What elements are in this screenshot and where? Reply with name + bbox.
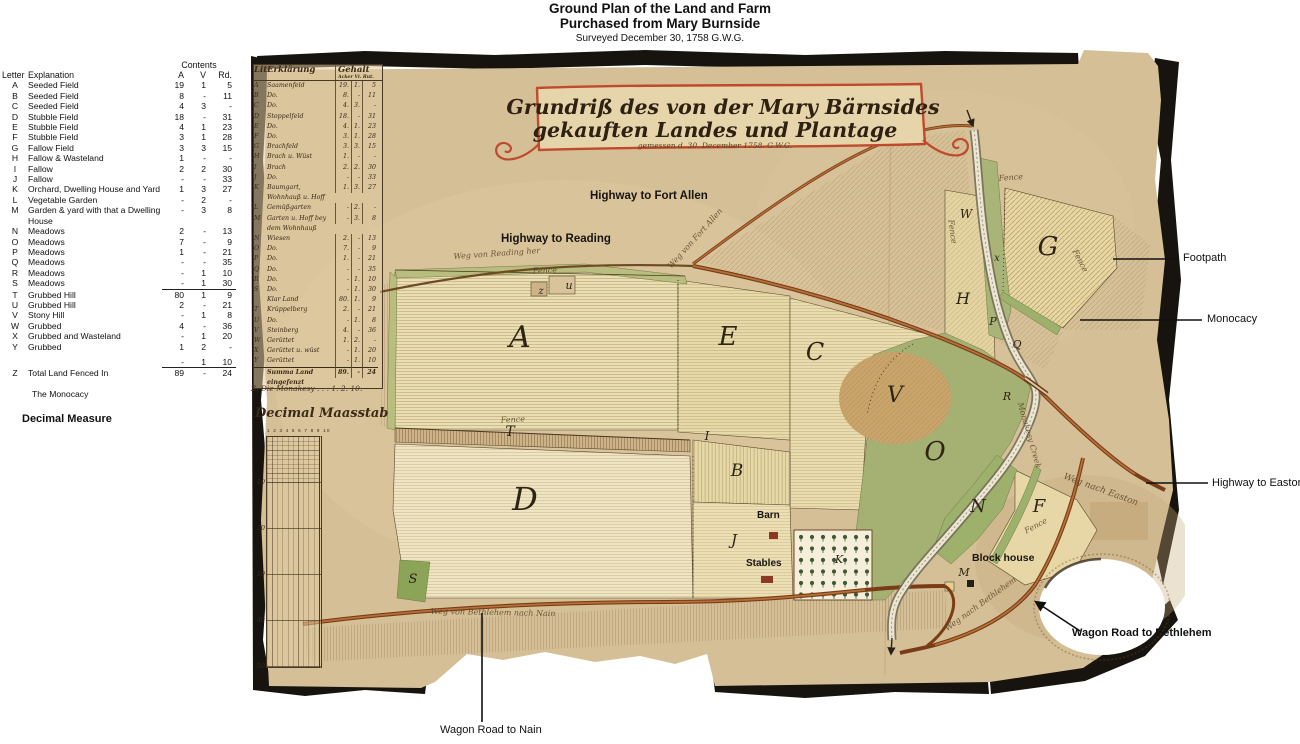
german-cell-A: Saamenfeld bbox=[267, 81, 335, 91]
orchard-tree bbox=[810, 558, 814, 562]
german-cell-G: 3. bbox=[351, 142, 362, 152]
legend-cell-P: 1 bbox=[162, 247, 188, 257]
map-letter-S: S bbox=[409, 572, 418, 587]
legend-cell-S: - bbox=[162, 278, 188, 289]
orchard-tree bbox=[810, 569, 814, 573]
legend-cell-Z: 89 bbox=[162, 368, 188, 378]
german-cell-row26: 89. bbox=[335, 367, 351, 378]
orchard-tree bbox=[865, 592, 869, 596]
legend-cell-L: L bbox=[2, 195, 28, 205]
map-letter-N: N bbox=[969, 496, 987, 517]
legend-cell-P: P bbox=[2, 247, 28, 257]
legend-cell-S: Meadows bbox=[28, 278, 162, 288]
legend-cell-X: X bbox=[2, 331, 28, 341]
legend-cell-N: N bbox=[2, 226, 28, 236]
legend-cell-E: Stubble Field bbox=[28, 122, 162, 132]
legend-cell-Q: - bbox=[162, 257, 188, 267]
map-letter-V: V bbox=[887, 383, 905, 408]
german-cell-M: M bbox=[254, 214, 267, 224]
legend-cell-K: K bbox=[2, 184, 28, 194]
legend-cell-I: 30 bbox=[210, 164, 236, 174]
legend-cell-M: - bbox=[162, 205, 188, 215]
legend-cell-L: - bbox=[162, 195, 188, 205]
german-cell-N: N bbox=[254, 234, 267, 244]
german-cell-Y: Y bbox=[254, 356, 267, 366]
legend-cell-S: 1 bbox=[188, 278, 210, 289]
legend-cell-H: 1 bbox=[162, 153, 188, 163]
legend-cell-Z: - bbox=[188, 368, 210, 378]
german-cell-N: 2. bbox=[335, 234, 351, 244]
german-cell-O: 9 bbox=[362, 244, 378, 254]
orchard-tree bbox=[843, 569, 847, 573]
legend-cell-S: S bbox=[2, 278, 28, 288]
legend-cell-X: Grubbed and Wasteland bbox=[28, 331, 162, 341]
german-cell-row19: 1. bbox=[351, 295, 362, 305]
legend-cell-R: 1 bbox=[188, 268, 210, 278]
german-cell-K: 1. bbox=[335, 183, 351, 193]
german-cell-C: C bbox=[254, 101, 267, 111]
orchard-tree bbox=[843, 535, 847, 539]
scale-bar bbox=[266, 436, 322, 668]
german-cell-S: - bbox=[335, 285, 351, 295]
german-cell-B: Do. bbox=[267, 91, 335, 101]
legend-cell-N: 2 bbox=[162, 226, 188, 236]
page: { "page": { "title1": "Ground Plan of th… bbox=[0, 0, 1300, 744]
german-cell-S: S bbox=[254, 285, 267, 295]
german-cell-S: Do. bbox=[267, 285, 335, 295]
german-cell-S: 30 bbox=[362, 285, 378, 295]
scale-top-ticks: 1 2 3 4 5 6 7 8 9 10 bbox=[267, 428, 331, 433]
legend-cell-P: 21 bbox=[210, 247, 236, 257]
legend-cell-X: 1 bbox=[188, 331, 210, 341]
map-letter-F: F bbox=[1032, 496, 1047, 517]
german-cell-J: J bbox=[254, 173, 267, 183]
cartouche-title-line1: Grundriß des von der Mary Bärnsides bbox=[506, 95, 940, 119]
german-cell-B: - bbox=[351, 91, 362, 101]
german-cell-H: Brach u. Wüst bbox=[267, 152, 335, 162]
orchard-tree bbox=[832, 569, 836, 573]
german-cell-Q: Q bbox=[254, 265, 267, 275]
german-cell-I: 2. bbox=[335, 163, 351, 173]
legend-cell-V: 8 bbox=[210, 310, 236, 320]
german-cell-O: O bbox=[254, 244, 267, 254]
legend-cell-W: 36 bbox=[210, 321, 236, 331]
german-cell-D: 18. bbox=[335, 112, 351, 122]
col-explanation: Explanation bbox=[28, 70, 162, 80]
legend-cell-W: - bbox=[188, 321, 210, 331]
legend-cell-D: - bbox=[188, 112, 210, 122]
orchard-tree bbox=[854, 581, 858, 585]
orchard-tree bbox=[799, 546, 803, 550]
german-cell-row19 bbox=[254, 295, 267, 305]
col-a: A bbox=[162, 70, 188, 80]
orchard-tree bbox=[865, 535, 869, 539]
german-cell-X: 20 bbox=[362, 346, 378, 356]
decimal-measure-heading: Decimal Measure bbox=[22, 413, 238, 425]
map-scan: Grundriß des von der Mary Bärnsides geka… bbox=[245, 40, 1185, 700]
german-cell-P: - bbox=[351, 254, 362, 264]
german-cell-K: Baumgart, Wohnhauß u. Hoff bbox=[267, 183, 335, 203]
german-cell-U: Do. bbox=[267, 316, 335, 326]
legend-cell-U: 2 bbox=[162, 300, 188, 310]
map-letter-P: P bbox=[988, 315, 997, 328]
german-cell-U: - bbox=[335, 316, 351, 326]
legend-cell-K: 1 bbox=[162, 184, 188, 194]
legend-cell-N: - bbox=[188, 226, 210, 236]
orchard-tree bbox=[843, 558, 847, 562]
legend-cell-Q: 35 bbox=[210, 257, 236, 267]
map-letter-M: M bbox=[957, 566, 970, 579]
map-letter-D: D bbox=[511, 480, 538, 518]
german-cell-O: Do. bbox=[267, 244, 335, 254]
orchard-tree bbox=[832, 581, 836, 585]
german-cell-row26: 24 bbox=[362, 367, 378, 378]
german-cell-W: 1. bbox=[335, 336, 351, 346]
german-cell-E: Do. bbox=[267, 122, 335, 132]
german-cell-O: 7. bbox=[335, 244, 351, 254]
german-cell-G: 3. bbox=[335, 142, 351, 152]
callout-wagon-road-to-nain: Wagon Road to Nain bbox=[440, 724, 542, 736]
german-cell-E: 4. bbox=[335, 122, 351, 132]
german-cell-L: - bbox=[335, 203, 351, 213]
german-cell-U: U bbox=[254, 316, 267, 326]
map-drawing: Grundriß des von der Mary Bärnsides geka… bbox=[245, 40, 1185, 700]
german-cell-S: 1. bbox=[351, 285, 362, 295]
legend-cell-W: Grubbed bbox=[28, 321, 162, 331]
legend-cell-A: 19 bbox=[162, 80, 188, 90]
orchard-tree bbox=[821, 569, 825, 573]
german-cell-P: Do. bbox=[267, 254, 335, 264]
scale-tick-40: 40 bbox=[251, 616, 265, 624]
legend-cell-O: Meadows bbox=[28, 237, 162, 247]
legend-cell-Z: Total Land Fenced In bbox=[28, 368, 162, 378]
legend-cell-Z: Z bbox=[2, 368, 28, 378]
german-legend-table: Lit. Erklärung Gehalt Acker Vi. Rut. ASa… bbox=[253, 64, 383, 389]
legend-cell-C: Seeded Field bbox=[28, 101, 162, 111]
german-cell-K: K bbox=[254, 183, 267, 193]
legend-cell-Z: 24 bbox=[210, 368, 236, 378]
map-letter-O: O bbox=[924, 437, 945, 467]
legend-cell-H: Fallow & Wasteland bbox=[28, 153, 162, 163]
german-cell-T: 21 bbox=[362, 305, 378, 315]
map-letter-W: W bbox=[960, 207, 974, 221]
river-flow-arrow-bottom bbox=[891, 638, 892, 654]
german-cell-J: Do. bbox=[267, 173, 335, 183]
legend-cell-D: Stubble Field bbox=[28, 112, 162, 122]
legend-cell-E: E bbox=[2, 122, 28, 132]
legend-cell-P: - bbox=[188, 247, 210, 257]
german-cell-G: 15 bbox=[362, 142, 378, 152]
german-cell-N: 13 bbox=[362, 234, 378, 244]
german-cell-W: W bbox=[254, 336, 267, 346]
legend-cell-M: Garden & yard with that a Dwelling House bbox=[28, 205, 162, 226]
german-cell-N: - bbox=[351, 234, 362, 244]
legend-cell-R: Meadows bbox=[28, 268, 162, 278]
callout-monocacy: Monocacy bbox=[1207, 313, 1257, 325]
scale-tick-10: 10 bbox=[251, 478, 265, 486]
legend-cell-Q: Q bbox=[2, 257, 28, 267]
orchard-tree bbox=[821, 581, 825, 585]
map-letter-R: R bbox=[1002, 390, 1011, 403]
legend-cell-B: B bbox=[2, 91, 28, 101]
scale-title: Decimal Maasstab bbox=[255, 406, 388, 421]
orchard-tree bbox=[799, 558, 803, 562]
german-cell-H: H bbox=[254, 152, 267, 162]
german-cell-P: P bbox=[254, 254, 267, 264]
legend-cell-I: Fallow bbox=[28, 164, 162, 174]
legend-cell-O: - bbox=[188, 237, 210, 247]
legend-cell-N: Meadows bbox=[28, 226, 162, 236]
legend-cell-X: - bbox=[162, 331, 188, 341]
german-cell-R: - bbox=[335, 275, 351, 285]
german-cell-F: 1. bbox=[351, 132, 362, 142]
german-cell-row26: - bbox=[351, 367, 362, 378]
german-cell-W: - bbox=[362, 336, 378, 346]
german-cell-H: - bbox=[351, 152, 362, 162]
col-v: V bbox=[188, 70, 210, 80]
orchard-tree bbox=[854, 546, 858, 550]
german-cell-T: - bbox=[351, 305, 362, 315]
german-cell-H: - bbox=[362, 152, 378, 162]
german-table-footer: Z. Die Monakesy . . . 1. 2. 10. bbox=[251, 384, 421, 393]
orchard-tree bbox=[865, 581, 869, 585]
german-cell-C: 4. bbox=[335, 101, 351, 111]
legend-cell-T: 80 bbox=[162, 290, 188, 300]
legend-cell-Y: 1 bbox=[162, 342, 188, 352]
german-cell-V: Steinberg bbox=[267, 326, 335, 336]
german-cell-A: 19. bbox=[335, 81, 351, 91]
legend-cell-A: A bbox=[2, 80, 28, 90]
legend-cell-Y: - bbox=[210, 342, 236, 352]
german-cell-X: X bbox=[254, 346, 267, 356]
german-cell-A: 1. bbox=[351, 81, 362, 91]
scale-tick-30: 30 bbox=[251, 570, 265, 578]
legend-cell-Q: Meadows bbox=[28, 257, 162, 267]
legend-cell-F: 1 bbox=[188, 132, 210, 142]
monocacy-note: The Monocacy bbox=[32, 389, 238, 399]
german-cell-A: 5 bbox=[362, 81, 378, 91]
legend-cell-Y: Grubbed bbox=[28, 342, 162, 352]
decimal-scale: Decimal Maasstab 1 2 3 4 5 6 7 8 9 10 10… bbox=[255, 406, 388, 421]
legend-cell-B: - bbox=[188, 91, 210, 101]
german-cell-T: T bbox=[254, 305, 267, 315]
orchard-tree bbox=[821, 535, 825, 539]
stables-icon bbox=[761, 576, 773, 583]
map-letter-x: x bbox=[994, 253, 1000, 264]
german-cell-A: A bbox=[254, 81, 267, 91]
legend-rows: ASeeded Field1915BSeeded Field8-11CSeede… bbox=[2, 80, 238, 378]
german-cell-I: 30 bbox=[362, 163, 378, 173]
german-cell-E: E bbox=[254, 122, 267, 132]
legend-cell-J: Fallow bbox=[28, 174, 162, 184]
legend-cell-C: - bbox=[210, 101, 236, 111]
legend-cell-D: D bbox=[2, 112, 28, 122]
german-cell-V: 4. bbox=[335, 326, 351, 336]
legend-cell-F: 28 bbox=[210, 132, 236, 142]
german-cell-D: Stoppelfeld bbox=[267, 112, 335, 122]
legend-cell-C: 4 bbox=[162, 101, 188, 111]
map-label-barn: Barn bbox=[757, 510, 780, 521]
legend-cell-G: 15 bbox=[210, 143, 236, 153]
legend-cell-K: 27 bbox=[210, 184, 236, 194]
german-cell-M: 8 bbox=[362, 214, 378, 224]
orchard-tree bbox=[854, 535, 858, 539]
legend-cell-row26: 1 bbox=[188, 357, 210, 368]
german-cell-row19: 9 bbox=[362, 295, 378, 305]
legend-cell-U: Grubbed Hill bbox=[28, 300, 162, 310]
legend-cell-W: W bbox=[2, 321, 28, 331]
legend-cell-A: 1 bbox=[188, 80, 210, 90]
legend-cell-row26: 10 bbox=[210, 357, 236, 368]
legend-cell-X: 20 bbox=[210, 331, 236, 341]
legend-cell-E: 1 bbox=[188, 122, 210, 132]
legend-cell-L: 2 bbox=[188, 195, 210, 205]
german-cell-J: - bbox=[335, 173, 351, 183]
legend-cell-O: O bbox=[2, 237, 28, 247]
orchard-tree bbox=[821, 546, 825, 550]
legend-cell-R: R bbox=[2, 268, 28, 278]
orchard-tree bbox=[799, 535, 803, 539]
german-cell-M: 3. bbox=[351, 214, 362, 224]
legend-cell-G: Fallow Field bbox=[28, 143, 162, 153]
german-cell-P: 1. bbox=[335, 254, 351, 264]
map-letter-Q: Q bbox=[1012, 338, 1021, 351]
german-cell-J: 33 bbox=[362, 173, 378, 183]
orchard-tree bbox=[843, 581, 847, 585]
legend-column-headers: Letter Explanation A V Rd. bbox=[2, 70, 238, 80]
german-cell-Y: - bbox=[335, 356, 351, 366]
german-cell-R: 10 bbox=[362, 275, 378, 285]
legend-cell-K: 3 bbox=[188, 184, 210, 194]
legend-cell-V: V bbox=[2, 310, 28, 320]
legend-cell-V: 1 bbox=[188, 310, 210, 320]
orchard-tree bbox=[854, 558, 858, 562]
german-cell-row19: 80. bbox=[335, 295, 351, 305]
legend-cell-F: 3 bbox=[162, 132, 188, 142]
german-cell-G: Brachfeld bbox=[267, 142, 335, 152]
german-cell-R: 1. bbox=[351, 275, 362, 285]
legend-cell-V: - bbox=[162, 310, 188, 320]
legend-cell-H: - bbox=[188, 153, 210, 163]
legend-cell-M: 8 bbox=[210, 205, 236, 215]
legend-cell-J: J bbox=[2, 174, 28, 184]
german-cell-U: 1. bbox=[351, 316, 362, 326]
legend-cell-C: C bbox=[2, 101, 28, 111]
german-cell-D: D bbox=[254, 112, 267, 122]
legend-cell-H: H bbox=[2, 153, 28, 163]
map-letter-H: H bbox=[955, 289, 971, 308]
german-cell-D: - bbox=[351, 112, 362, 122]
legend-cell-F: F bbox=[2, 132, 28, 142]
german-cell-Y: 1. bbox=[351, 356, 362, 366]
german-cell-E: 1. bbox=[351, 122, 362, 132]
legend-cell-I: I bbox=[2, 164, 28, 174]
barn-icon bbox=[769, 532, 778, 539]
scale-tick-50: 50 bbox=[251, 662, 265, 670]
german-cell-L: Gemüßgarten bbox=[267, 203, 335, 213]
page-subtitle: Purchased from Mary Burnside bbox=[430, 17, 890, 32]
legend-cell-M: M bbox=[2, 205, 28, 215]
german-cell-V: 36 bbox=[362, 326, 378, 336]
german-cell-F: F bbox=[254, 132, 267, 142]
legend-cell-L: - bbox=[210, 195, 236, 205]
german-cell-T: 2. bbox=[335, 305, 351, 315]
legend-cell-F: Stubble Field bbox=[28, 132, 162, 142]
legend-contents-header: Contents bbox=[2, 60, 238, 70]
german-table-rows: ASaamenfeld19.1.5BDo.8.-11CDo.4.3.-DStop… bbox=[254, 81, 382, 388]
legend-cell-T: T bbox=[2, 290, 28, 300]
callout-footpath: Footpath bbox=[1183, 252, 1226, 264]
german-cell-F: 28 bbox=[362, 132, 378, 142]
orchard-tree bbox=[799, 581, 803, 585]
map-letter-z: z bbox=[537, 286, 544, 297]
legend-cell-G: G bbox=[2, 143, 28, 153]
german-cell-H: 1. bbox=[335, 152, 351, 162]
legend-cell-T: Grubbed Hill bbox=[28, 290, 162, 300]
legend-cell-J: 33 bbox=[210, 174, 236, 184]
german-cell-E: 23 bbox=[362, 122, 378, 132]
german-cell-W: 2. bbox=[351, 336, 362, 346]
col-letter: Letter bbox=[2, 70, 28, 80]
cartouche-title-line2: gekauften Landes und Plantage bbox=[533, 118, 898, 142]
map-letter-C: C bbox=[806, 338, 824, 366]
map-letter-u: u bbox=[565, 279, 572, 292]
map-letter-A: A bbox=[506, 320, 531, 355]
legend-cell-P: Meadows bbox=[28, 247, 162, 257]
german-cell-W: Gerüttet bbox=[267, 336, 335, 346]
legend-cell-H: - bbox=[210, 153, 236, 163]
legend-cell-G: 3 bbox=[162, 143, 188, 153]
callout-highway-to-easton: Highway to Easton bbox=[1212, 477, 1300, 489]
legend-cell-E: 23 bbox=[210, 122, 236, 132]
german-cell-B: 11 bbox=[362, 91, 378, 101]
legend-cell-E: 4 bbox=[162, 122, 188, 132]
legend-cell-U: 21 bbox=[210, 300, 236, 310]
legend-cell-L: Vegetable Garden bbox=[28, 195, 162, 205]
col-rd: Rd. bbox=[210, 70, 236, 80]
map-label-block-house: Block house bbox=[972, 552, 1034, 564]
map-label-highway-to-fort-allen: Highway to Fort Allen bbox=[590, 190, 708, 202]
scale-tick-20: 20 bbox=[251, 524, 265, 532]
legend-cell-J: - bbox=[188, 174, 210, 184]
map-letter-I: I bbox=[704, 429, 710, 443]
legend-cell-Y: Y bbox=[2, 342, 28, 352]
blockhouse-icon bbox=[967, 580, 974, 587]
german-cell-O: - bbox=[351, 244, 362, 254]
german-cell-row26 bbox=[254, 367, 267, 378]
german-cell-C: - bbox=[362, 101, 378, 111]
legend-cell-T: 1 bbox=[188, 290, 210, 300]
german-cell-V: - bbox=[351, 326, 362, 336]
german-cell-F: 3. bbox=[335, 132, 351, 142]
orchard-tree bbox=[810, 581, 814, 585]
legend-cell-G: 3 bbox=[188, 143, 210, 153]
orchard-tree bbox=[865, 569, 869, 573]
german-cell-I: Brach bbox=[267, 163, 335, 173]
german-cell-R: Do. bbox=[267, 275, 335, 285]
legend-cell-Q: - bbox=[188, 257, 210, 267]
german-cell-Q: - bbox=[335, 265, 351, 275]
legend-cell-B: Seeded Field bbox=[28, 91, 162, 101]
german-cell-Q: 35 bbox=[362, 265, 378, 275]
german-cell-M: - bbox=[335, 214, 351, 224]
german-cell-F: Do. bbox=[267, 132, 335, 142]
orchard-tree bbox=[832, 535, 836, 539]
legend-cell-M: 3 bbox=[188, 205, 210, 215]
legend-cell-U: U bbox=[2, 300, 28, 310]
legend-cell-A: Seeded Field bbox=[28, 80, 162, 90]
legend-cell-B: 8 bbox=[162, 91, 188, 101]
